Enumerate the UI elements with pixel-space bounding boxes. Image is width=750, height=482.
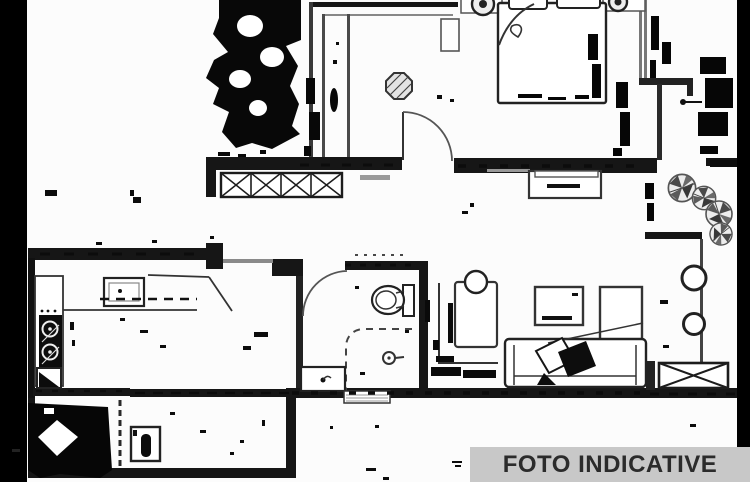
stool-circle — [682, 266, 706, 290]
wardrobe-dark-mass — [206, 0, 338, 157]
coffee-table — [535, 287, 583, 325]
threshold-step — [360, 175, 390, 180]
cooktop-hob — [39, 310, 62, 367]
stool-circle — [684, 314, 705, 335]
radiator-hatch-box — [659, 363, 728, 388]
shelf-small — [441, 19, 459, 51]
pillow-right — [557, 0, 600, 8]
washbasin — [301, 367, 345, 391]
lower-room-flecks — [170, 412, 265, 455]
left-black-band — [0, 0, 27, 482]
armchair-cushion — [465, 271, 487, 293]
shower-drain — [383, 352, 404, 364]
lower-room — [28, 403, 265, 478]
window-hatch-strip — [221, 173, 342, 197]
kitchen-sink — [104, 278, 144, 306]
floorplan-drawing — [0, 0, 750, 482]
kitchen-fixtures — [35, 275, 232, 388]
walls — [28, 0, 737, 478]
toilet — [372, 285, 414, 316]
shower-boundary — [346, 329, 412, 392]
counter-edge — [63, 275, 232, 311]
right-black-band — [737, 0, 750, 447]
corner-sink-box — [37, 368, 61, 388]
door-swing-arcs — [303, 112, 452, 316]
foto-indicative-label: FOTO INDICATIVE — [470, 447, 750, 482]
floorplan-screenshot: FOTO INDICATIVE — [0, 0, 750, 482]
kitchen-flecks — [70, 318, 166, 348]
washing-machine — [131, 427, 160, 461]
bathroom-fixtures — [301, 285, 414, 392]
console-table — [529, 171, 601, 198]
bathroom-door-arc — [303, 271, 347, 316]
balcony-door-handle — [680, 99, 702, 105]
ceiling-light-octagon — [386, 73, 412, 99]
bedroom-door-arc — [403, 112, 452, 161]
